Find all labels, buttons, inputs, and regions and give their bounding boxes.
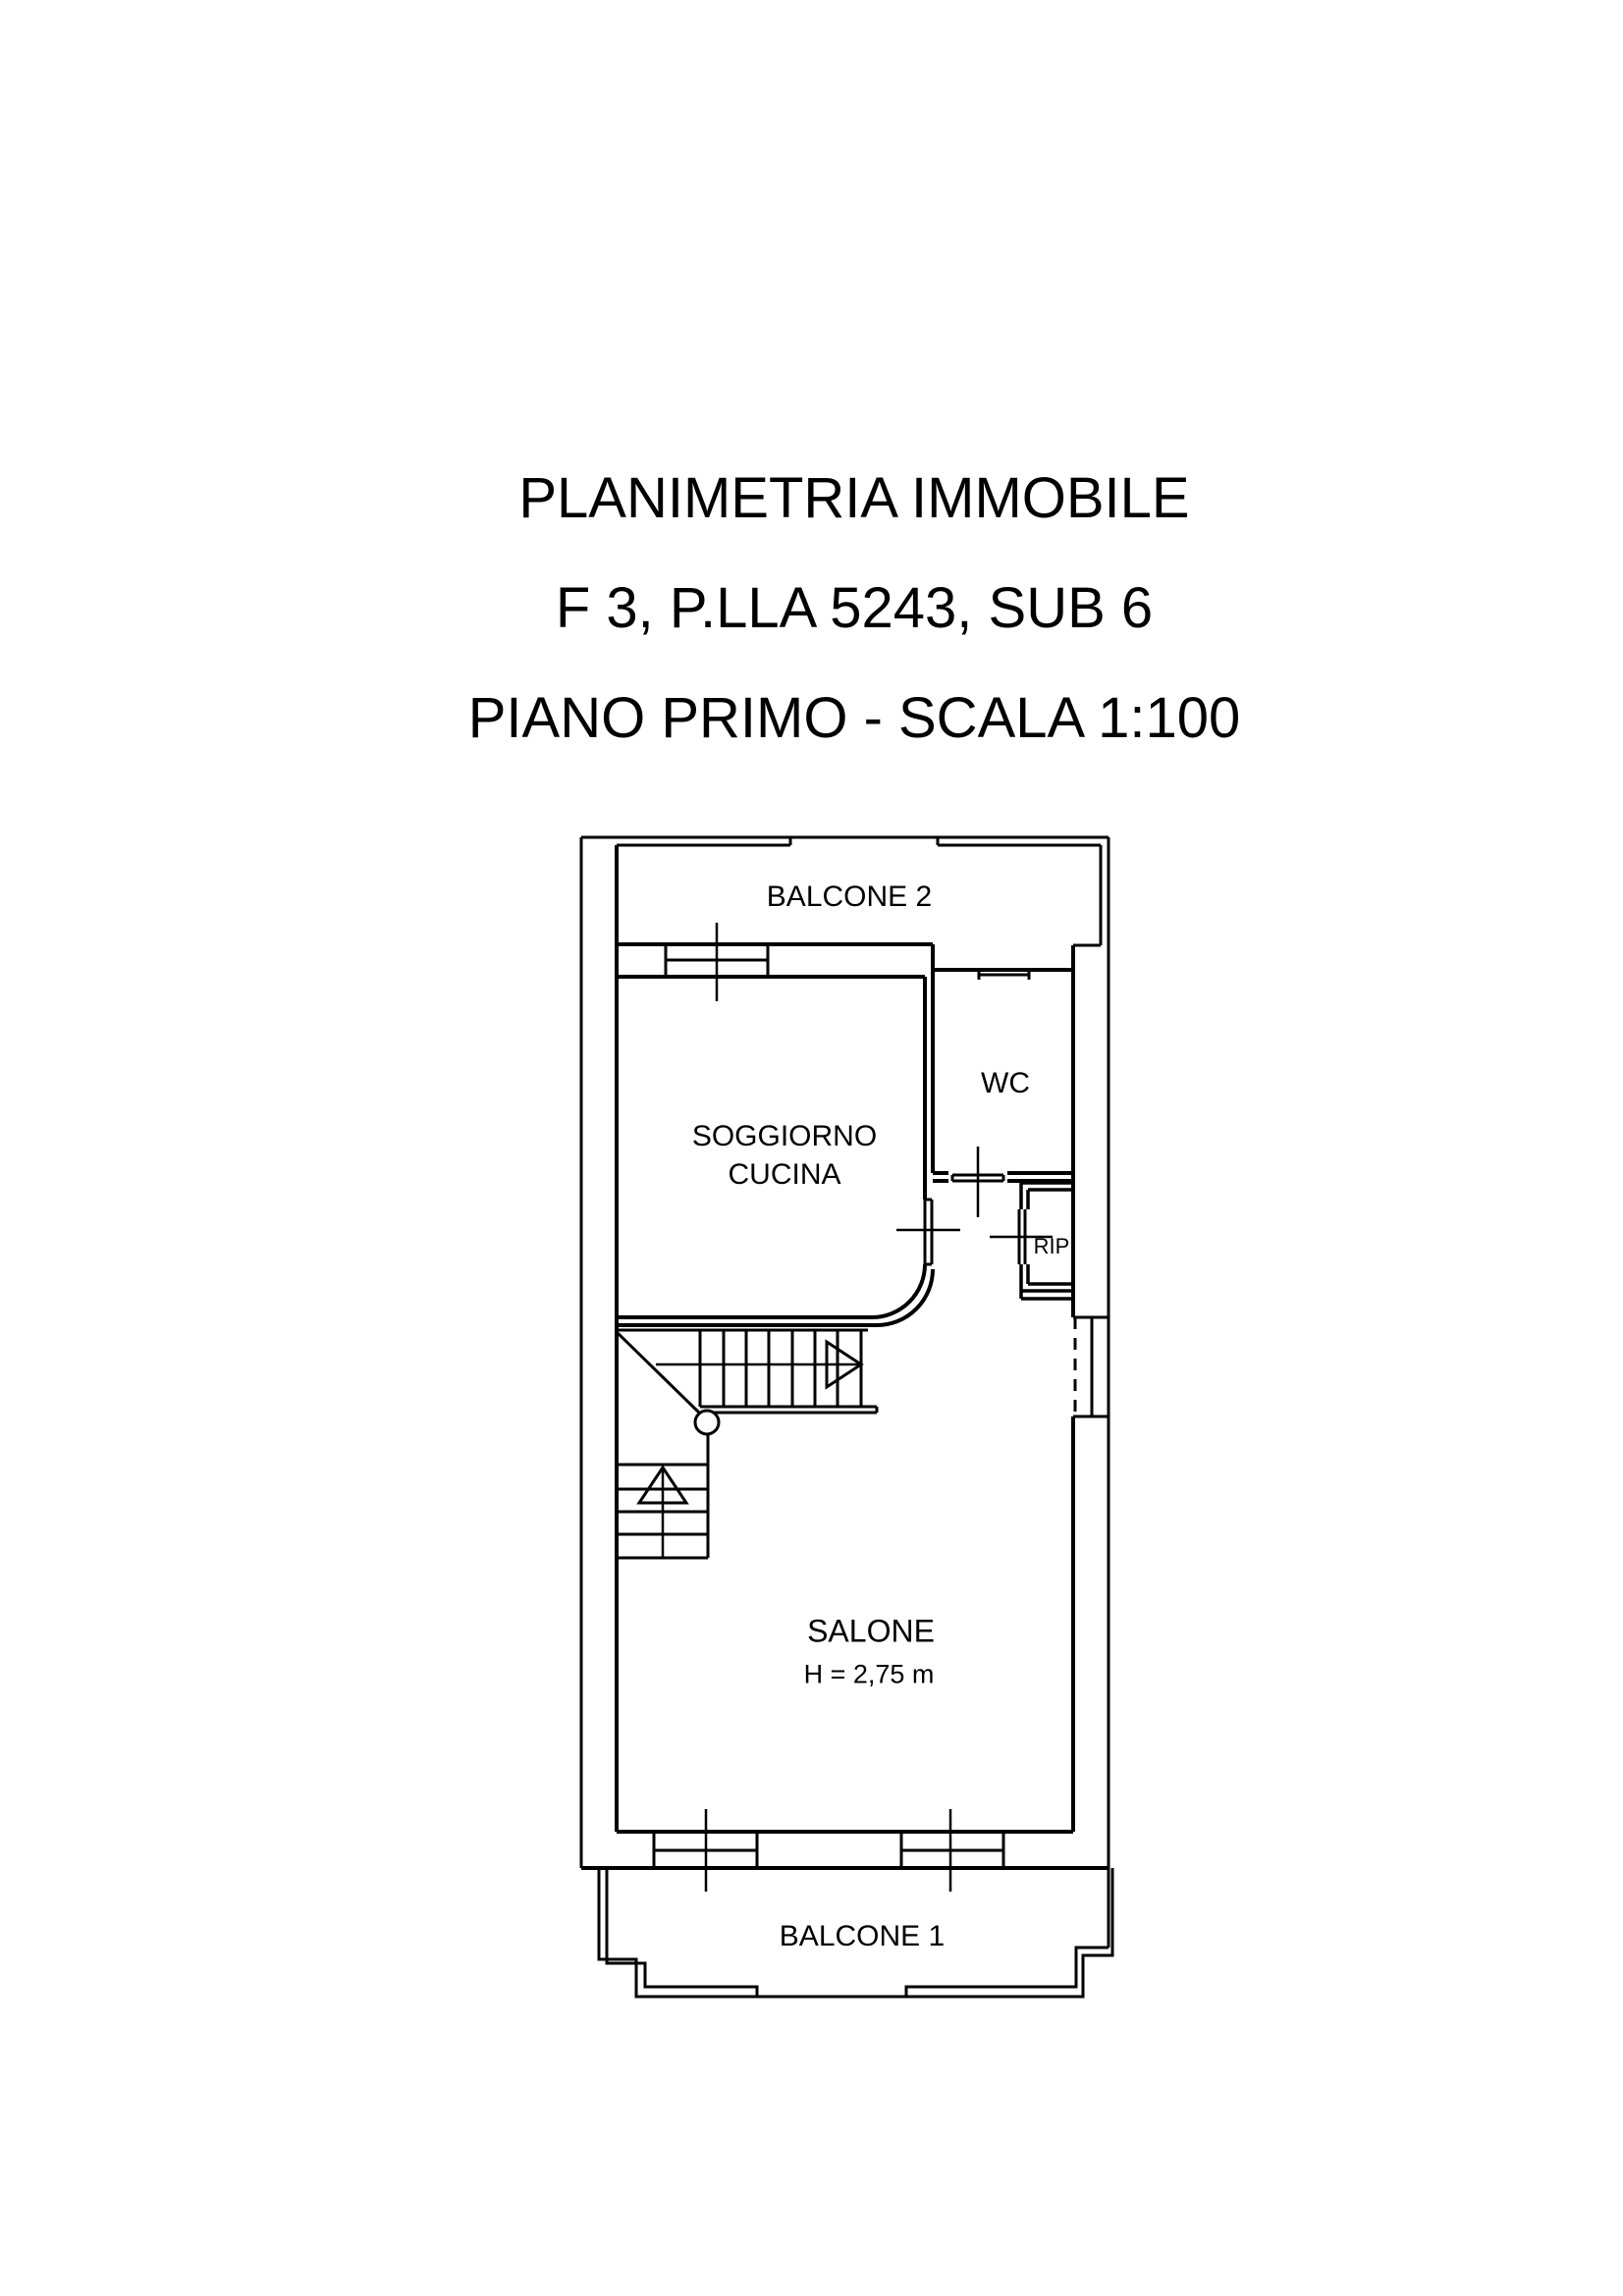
walls bbox=[581, 845, 1109, 1868]
stair-bottom-edge bbox=[700, 1407, 877, 1413]
label-wc: WC bbox=[981, 1067, 1030, 1100]
window-salone-right bbox=[901, 1832, 1003, 1868]
label-balcone2: BALCONE 2 bbox=[767, 881, 932, 914]
stair-steps bbox=[700, 1330, 861, 1407]
staircase-main bbox=[617, 1330, 877, 1558]
label-rip: RIP bbox=[1034, 1234, 1070, 1259]
label-balcone1: BALCONE 1 bbox=[780, 1920, 945, 1953]
stair-winder-diagonal bbox=[617, 1332, 701, 1415]
balcone1-inner-left bbox=[607, 1868, 757, 1996]
balcone1-inner-right bbox=[906, 1948, 1109, 1996]
label-cucina: CUCINA bbox=[728, 1158, 840, 1192]
stair-newel-post bbox=[695, 1411, 719, 1434]
label-salone-height: H = 2,75 m bbox=[804, 1660, 935, 1690]
outer-boundary bbox=[581, 837, 1109, 1948]
floor-plan-page: PLANIMETRIA IMMOBILE F 3, P.LLA 5243, SU… bbox=[0, 0, 1623, 2296]
label-soggiorno: SOGGIORNO bbox=[692, 1120, 877, 1153]
label-salone: SALONE bbox=[807, 1614, 935, 1650]
staircase-small bbox=[617, 1465, 708, 1558]
door-hall bbox=[925, 1200, 932, 1264]
wall-niche bbox=[1073, 1317, 1109, 1416]
